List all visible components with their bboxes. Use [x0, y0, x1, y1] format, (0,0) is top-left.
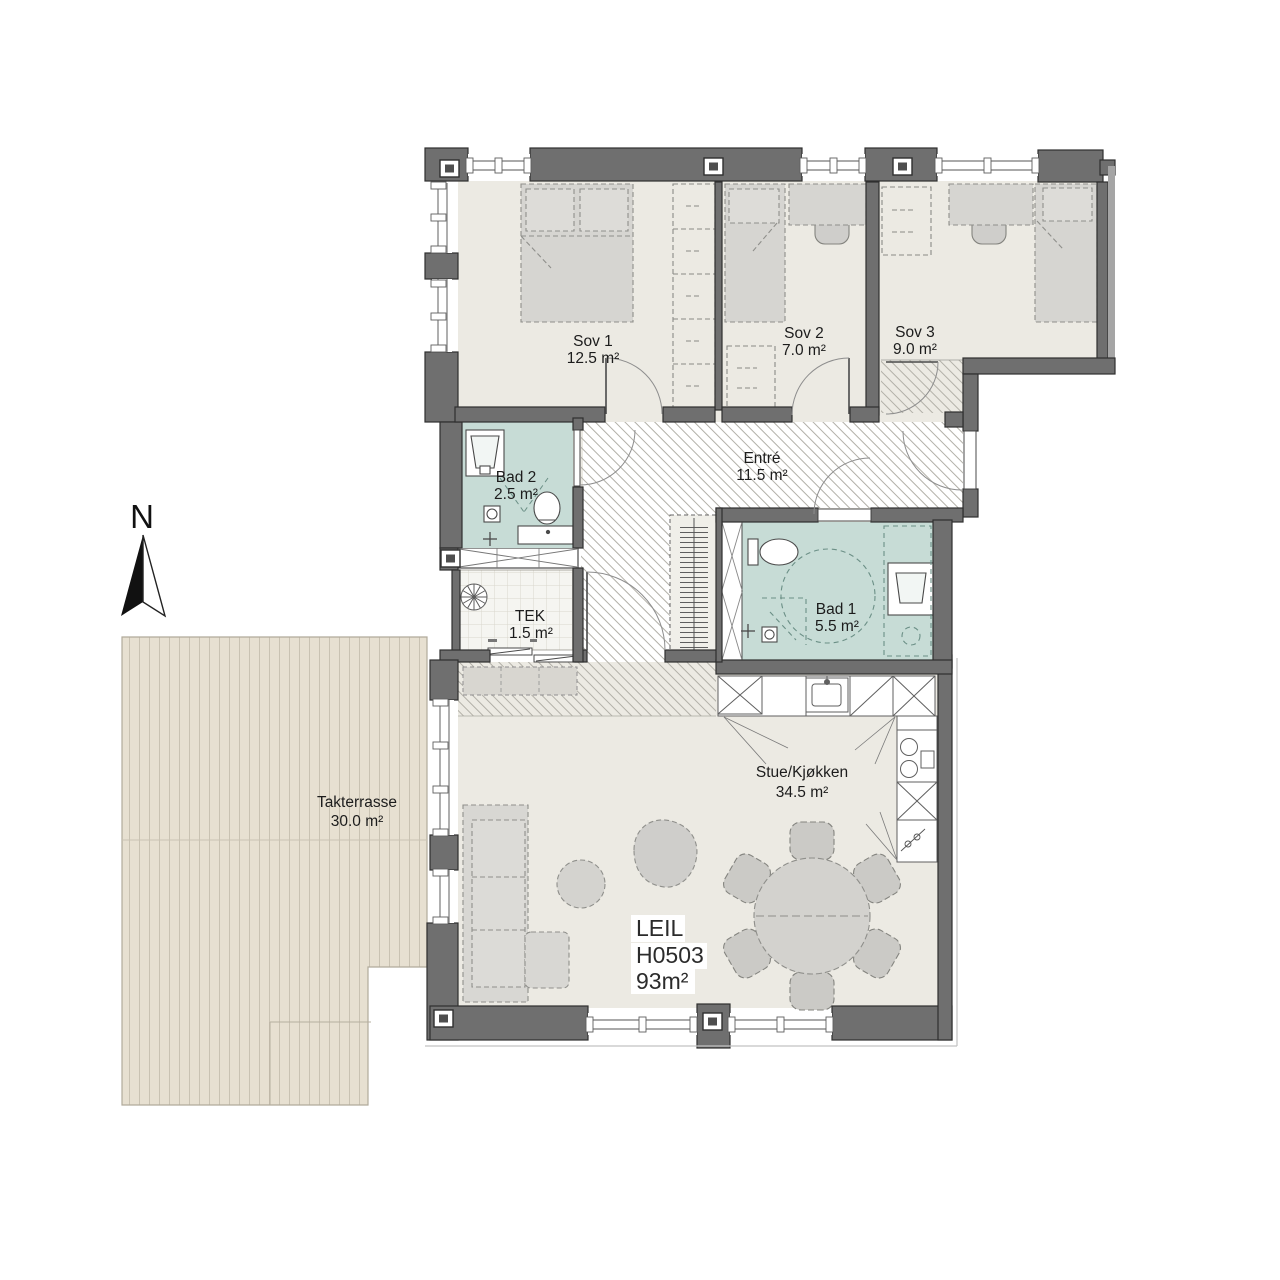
room-area-tek: 1.5 m²: [509, 625, 553, 642]
north-arrow: N: [121, 498, 165, 616]
apartment-id-line2: H0503: [636, 942, 704, 968]
ventilation-fan-icon: [461, 584, 487, 610]
apartment-id-line1: LEIL: [636, 915, 684, 941]
north-needle-light: [143, 535, 165, 616]
coat-rack: [670, 515, 716, 655]
room-label-sov1: Sov 1: [573, 333, 613, 350]
floor-plan-page: N: [0, 0, 1280, 1280]
tiny-annotation: [488, 639, 497, 642]
room-label-sov2: Sov 2: [784, 325, 824, 342]
north-needle-dark: [121, 535, 143, 616]
coffee-table: [634, 820, 697, 887]
floor-plan-drawing: N: [0, 0, 1280, 1280]
room-area-bad1: 5.5 m²: [815, 618, 859, 635]
desk: [789, 184, 866, 225]
terrace-deck: [122, 637, 427, 1105]
room-label-terrace: Takterrasse: [317, 794, 397, 811]
sideboard: [463, 667, 577, 695]
room-area-sov2: 7.0 m²: [782, 342, 826, 359]
toilet-icon: [748, 539, 758, 565]
desk: [949, 184, 1033, 225]
room-area-sov1: 12.5 m²: [567, 350, 620, 367]
room-area-bad2: 2.5 m²: [494, 486, 538, 503]
north-label: N: [130, 498, 154, 535]
floor-drain-icon: [484, 506, 500, 522]
room-label-entre: Entré: [743, 450, 780, 467]
room-area-terrace: 30.0 m²: [331, 813, 384, 830]
room-area-stue: 34.5 m²: [776, 784, 829, 801]
room-area-sov3: 9.0 m²: [893, 341, 937, 358]
vanity: [518, 526, 573, 544]
room-area-entre: 11.5 m²: [736, 467, 787, 484]
floor-drain-icon: [762, 627, 777, 642]
room-label-tek: TEK: [515, 608, 546, 625]
room-label-bad2: Bad 2: [496, 469, 537, 486]
room-label-stue: Stue/Kjøkken: [756, 764, 848, 781]
room-label-sov3: Sov 3: [895, 324, 935, 341]
ottoman: [557, 860, 605, 908]
apartment-id-line3: 93m²: [636, 968, 689, 994]
room-label-bad1: Bad 1: [816, 601, 857, 618]
